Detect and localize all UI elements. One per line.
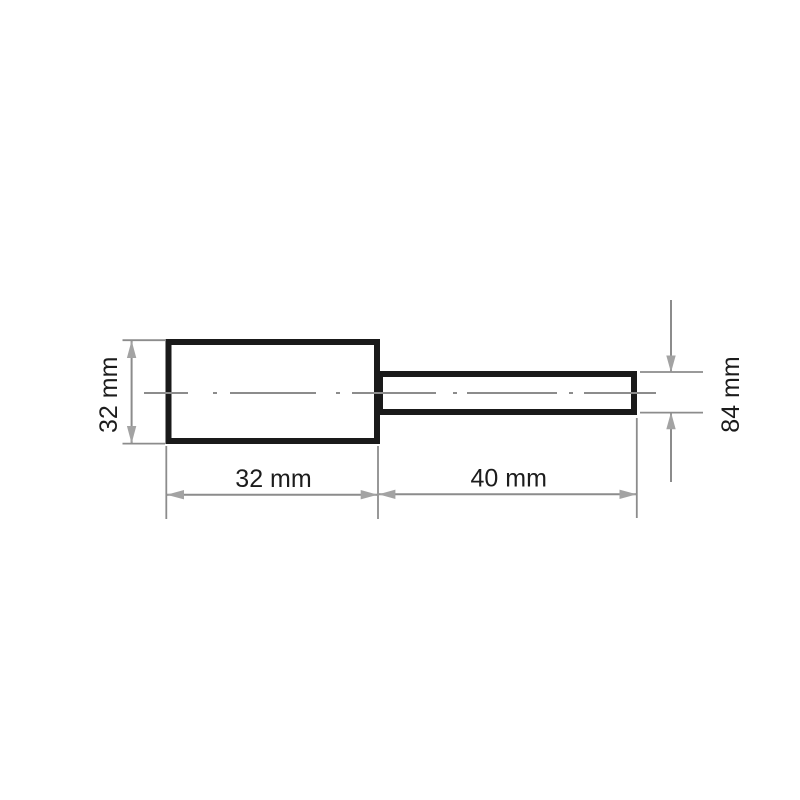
svg-text:32 mm: 32 mm [235, 465, 311, 493]
svg-text:32 mm: 32 mm [95, 357, 123, 433]
svg-text:40 mm: 40 mm [470, 465, 546, 493]
svg-text:84 mm: 84 mm [717, 356, 745, 432]
